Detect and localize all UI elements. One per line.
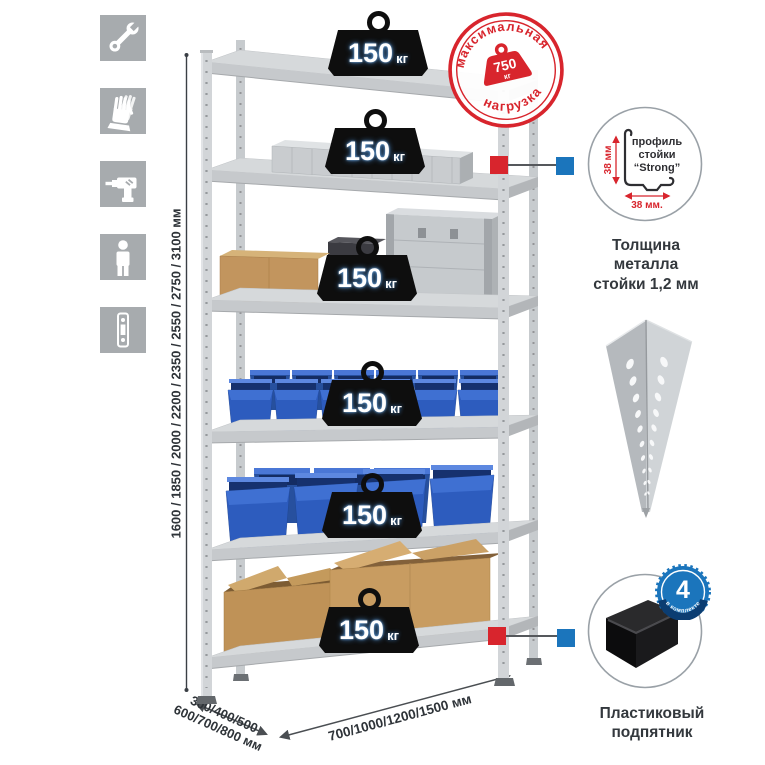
foot-caption: Пластиковый подпятник <box>587 704 717 743</box>
shelf-load-unit: кг <box>396 52 408 65</box>
included-count-badge: 4 в комплекте <box>655 564 711 620</box>
height-dimension-label: 1600 / 1850 / 2000 / 2200 / 2350 / 2550 … <box>169 159 184 589</box>
weight-icon: 150 кг <box>325 128 425 174</box>
shelf-load-unit: кг <box>387 629 399 642</box>
gloves-icon <box>100 88 146 134</box>
shelf-load-value: 150 <box>345 138 390 165</box>
profile-label-line3: “Strong” <box>634 162 680 174</box>
profile-label-line2: стойки <box>638 149 675 161</box>
shelf-load-unit: кг <box>390 402 402 415</box>
rack-post-icon <box>100 307 146 353</box>
person-icon <box>100 234 146 280</box>
feature-tile-post <box>100 307 146 353</box>
foot-caption-line1: Пластиковый <box>587 704 717 723</box>
shelf-load-unit: кг <box>390 514 402 527</box>
feature-tile-gloves <box>100 88 146 134</box>
weight-icon: 150 кг <box>328 30 428 76</box>
post-profile-detail: 38 мм 38 мм. профиль стойки “Strong” <box>586 105 704 223</box>
weight-icon: 150 кг <box>319 607 419 653</box>
callout-line-bottom <box>506 635 557 637</box>
profile-caption: Толщина металла стойки 1,2 мм <box>578 236 714 294</box>
stamp-graphic: максимальная нагрузка 750 кг <box>433 0 579 143</box>
weight-icon: 150 кг <box>317 255 417 301</box>
angle-post-image <box>600 312 696 520</box>
callout-marker-red-top <box>490 156 508 174</box>
shelf-load-badge-5: 150 кг <box>322 473 422 538</box>
shelf-load-unit: кг <box>385 277 397 290</box>
profile-dim-vertical: 38 мм <box>603 146 614 175</box>
callout-marker-red-bottom <box>488 627 506 645</box>
wrench-icon <box>100 15 146 61</box>
feature-tile-assembly <box>100 15 146 61</box>
shelf-load-badge-3: 150 кг <box>317 236 417 301</box>
max-load-stamp: максимальная нагрузка 750 кг <box>433 0 579 143</box>
callout-line-top <box>508 164 556 166</box>
profile-caption-line1: Толщина металла <box>578 236 714 275</box>
shelving-infographic: 1600 / 1850 / 2000 / 2200 / 2350 / 2550 … <box>0 0 765 765</box>
shelf-load-badge-1: 150 кг <box>328 11 428 76</box>
shelf-load-value: 150 <box>339 617 384 644</box>
foot-caption-line2: подпятник <box>587 723 717 742</box>
shelf-load-value: 150 <box>337 265 382 292</box>
feature-tile-drill <box>100 161 146 207</box>
shelf-load-unit: кг <box>393 150 405 163</box>
feature-tile-person <box>100 234 146 280</box>
shelf-load-value: 150 <box>342 390 387 417</box>
shelf-load-badge-6: 150 кг <box>319 588 419 653</box>
shelf-load-badge-2: 150 кг <box>325 109 425 174</box>
profile-caption-line2: стойки 1,2 мм <box>578 275 714 294</box>
profile-label-line1: профиль <box>632 136 682 148</box>
callout-marker-blue-top <box>556 157 574 175</box>
weight-icon: 150 кг <box>322 380 422 426</box>
badge-count: 4 <box>676 576 690 604</box>
shelf-load-badge-4: 150 кг <box>322 361 422 426</box>
weight-icon: 150 кг <box>322 492 422 538</box>
drill-icon <box>100 161 146 207</box>
shelf-load-value: 150 <box>342 502 387 529</box>
profile-dim-horizontal: 38 мм. <box>631 200 663 211</box>
callout-marker-blue-bottom <box>557 629 575 647</box>
shelf-load-value: 150 <box>348 40 393 67</box>
